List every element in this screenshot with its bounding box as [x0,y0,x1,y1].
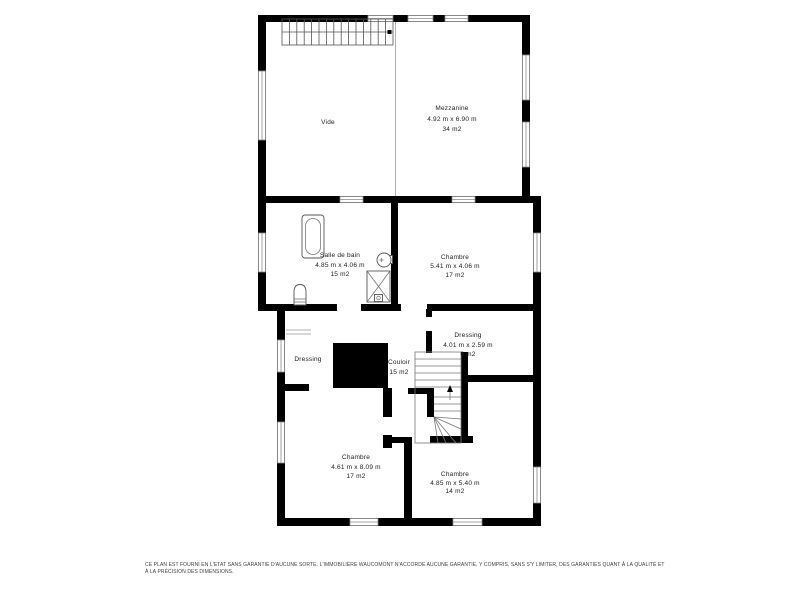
room-name: Chambre [342,454,370,461]
disclaimer-line-2: À LA PRÉCISION DES DIMENSIONS. [145,569,685,576]
closet-lines [286,330,311,334]
room-area: 15 m2 [389,369,408,376]
window-icon [408,16,433,22]
room-name: Couloir [388,359,411,366]
windows [259,16,541,526]
room-label-chambre-2: Chambre 4.61 m x 8.09 m 17 m2 [331,454,381,480]
room-name: Chambre [441,471,469,478]
room-dimensions: 4.85 m x 5.40 m [430,480,480,487]
floor-plan-canvas: Vide Mezzanine 4.92 m x 6.90 m 34 m2 Sal… [0,0,800,600]
window-icon [278,340,285,372]
room-name: Dressing [294,356,321,363]
room-name: Vide [321,119,335,126]
room-area: 14 m2 [445,488,464,495]
toilet-icon [294,285,306,306]
room-label-chambre-1: Chambre 5.41 m x 4.06 m 17 m2 [430,254,480,279]
floor-plan-page: Vide Mezzanine 4.92 m x 6.90 m 34 m2 Sal… [0,0,800,600]
window-icon [350,519,378,526]
window-icon [445,16,468,22]
window-icon [340,197,363,203]
disclaimer-line-1: CE PLAN EST FOURNI EN L'ETAT SANS GARANT… [145,562,685,569]
room-name: Salle de bain [320,252,360,259]
room-area: 6 m2 [460,351,475,358]
room-dimensions: 4.61 m x 8.09 m [331,464,381,471]
room-dimensions: 4.01 m x 2.59 m [443,342,493,349]
window-icon [452,197,475,203]
walls [258,15,541,526]
room-label-chambre-3: Chambre 4.85 m x 5.40 m 14 m2 [430,471,480,495]
shower-icon [367,271,390,302]
stairs-direction-arrow-icon [447,385,453,392]
room-area: 15 m2 [330,271,349,278]
room-dimensions: 5.41 m x 4.06 m [430,263,480,270]
chimney-block [333,343,388,388]
room-dimensions: 4.92 m x 6.90 m [427,116,477,123]
disclaimer-text: CE PLAN EST FOURNI EN L'ETAT SANS GARANT… [145,562,685,576]
room-label-dressing-droit: Dressing 4.01 m x 2.59 m 6 m2 [443,332,493,358]
room-area: 17 m2 [346,473,365,480]
window-icon [523,122,530,167]
room-area: 17 m2 [445,272,464,279]
room-name: Mezzanine [435,105,468,112]
stairs-upper-icon [282,19,393,45]
window-icon [368,16,393,22]
room-name: Dressing [454,332,481,339]
window-icon [259,71,266,140]
sink-icon [377,253,393,267]
room-label-salle-de-bain: Salle de bain 4.85 m x 4.06 m 15 m2 [315,252,365,278]
room-name: Chambre [441,254,469,261]
room-label-dressing-gauche: Dressing [294,356,321,363]
room-label-couloir: Couloir 15 m2 [388,359,411,376]
window-icon [534,467,541,503]
room-label-vide: Vide [321,119,335,126]
window-icon [259,233,266,272]
window-icon [523,55,530,100]
window-icon [453,519,482,526]
window-icon [278,422,285,463]
room-label-mezzanine: Mezzanine 4.92 m x 6.90 m 34 m2 [427,105,477,133]
window-icon [534,233,541,272]
room-area: 34 m2 [442,126,461,133]
stairs-lower-icon [415,352,461,443]
room-dimensions: 4.85 m x 4.06 m [315,262,365,269]
